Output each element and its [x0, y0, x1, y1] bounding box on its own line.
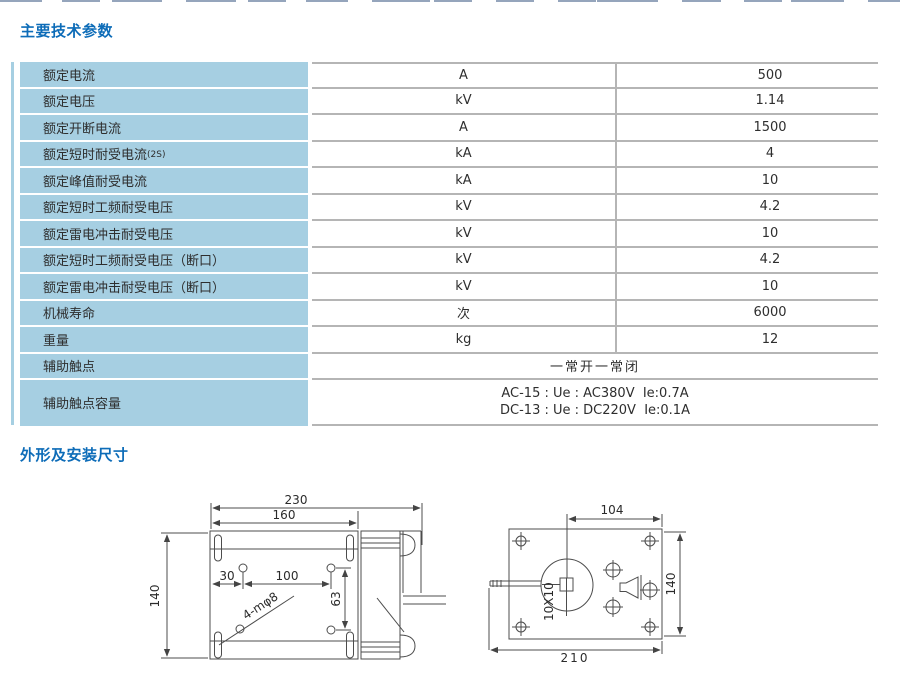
table-row: 额定短时工频耐受电压kV4.2 [20, 195, 878, 222]
dim-104: 104 [601, 503, 624, 517]
table-row: 额定短时工频耐受电压（断口）kV4.2 [20, 248, 878, 275]
param-value: 1.14 [617, 89, 878, 116]
param-label: 额定雷电冲击耐受电压 [20, 221, 308, 248]
right-hole [640, 580, 660, 600]
table-row: 辅助触点容量AC-15 : Ue : AC380V Ie:0.7ADC-13 :… [20, 380, 878, 426]
param-label: 额定峰值耐受电流 [20, 168, 308, 195]
dim-30: 30 [219, 569, 234, 583]
mounting-slot [215, 632, 222, 658]
rear-view-labels: 104 140 210 10X10 [542, 503, 678, 665]
param-value: 4.2 [617, 248, 878, 275]
side-projection [361, 531, 446, 659]
table-row: 额定短时耐受电流(2S)kA4 [20, 142, 878, 169]
table-row: 额定峰值耐受电流kA10 [20, 168, 878, 195]
rear-plate-outline [509, 529, 662, 639]
page-top-cropped-text-artifact [0, 0, 900, 2]
table-row: 额定雷电冲击耐受电压（断口）kV10 [20, 274, 878, 301]
param-label: 额定短时工频耐受电压（断口） [20, 248, 308, 275]
param-unit: 次 [312, 301, 617, 328]
front-view-drawing [161, 503, 446, 659]
corner-hole [512, 532, 530, 550]
table-row: 额定雷电冲击耐受电压kV10 [20, 221, 878, 248]
table-row: 辅助触点一常开一常闭 [20, 354, 878, 381]
param-label: 辅助触点 [20, 354, 308, 381]
front-view-labels: 230 160 140 30 100 63 4-mφ8 [148, 493, 343, 623]
dim-210: 210 [561, 651, 590, 665]
corner-hole [512, 618, 530, 636]
param-span-line: AC-15 : Ue : AC380V Ie:0.7A [501, 385, 688, 402]
cone-feature [620, 575, 641, 600]
lever-arm [490, 580, 541, 587]
param-value: 6000 [617, 301, 878, 328]
mounting-slot [215, 535, 222, 561]
param-unit: A [312, 115, 617, 142]
param-label: 额定电压 [20, 89, 308, 116]
param-unit: kV [312, 195, 617, 222]
param-unit: kV [312, 248, 617, 275]
param-span-line: DC-13 : Ue : DC220V Ie:0.1A [500, 402, 690, 419]
param-label-note: (2S) [147, 150, 165, 160]
param-label: 额定开断电流 [20, 115, 308, 142]
param-value: 10 [617, 274, 878, 301]
param-unit: kV [312, 89, 617, 116]
param-label: 额定短时工频耐受电压 [20, 195, 308, 222]
mounting-hole [327, 564, 335, 572]
rear-view-drawing [489, 514, 686, 654]
mounting-hole [239, 564, 247, 572]
dim-63: 63 [329, 591, 343, 606]
param-label: 机械寿命 [20, 301, 308, 328]
param-value: 12 [617, 327, 878, 354]
param-label: 辅助触点容量 [20, 380, 308, 426]
mounting-slot [347, 632, 354, 658]
param-value: 4 [617, 142, 878, 169]
param-unit: A [312, 62, 617, 89]
section-title-dimensions: 外形及安装尺寸 [20, 444, 129, 465]
param-unit: kV [312, 221, 617, 248]
dim-230: 230 [285, 493, 308, 507]
param-label: 重量 [20, 327, 308, 354]
param-unit: kg [312, 327, 617, 354]
param-value: 4.2 [617, 195, 878, 222]
param-unit: kA [312, 142, 617, 169]
table-row: 额定开断电流A1500 [20, 115, 878, 142]
corner-hole [641, 618, 659, 636]
param-span-value: AC-15 : Ue : AC380V Ie:0.7ADC-13 : Ue : … [312, 380, 878, 426]
dim-160: 160 [273, 508, 296, 522]
mounting-hole [327, 626, 335, 634]
table-row: 机械寿命次6000 [20, 301, 878, 328]
param-label: 额定雷电冲击耐受电压（断口） [20, 274, 308, 301]
mounting-slot [347, 535, 354, 561]
table-row: 重量kg12 [20, 327, 878, 354]
params-table: 额定电流A500额定电压kV1.14额定开断电流A1500额定短时耐受电流(2S… [20, 62, 878, 426]
table-row: 额定电流A500 [20, 62, 878, 89]
param-value: 500 [617, 62, 878, 89]
dim-100: 100 [276, 569, 299, 583]
table-left-border [11, 62, 14, 425]
section-title-main-parameters: 主要技术参数 [20, 20, 113, 41]
corner-hole [641, 532, 659, 550]
dim-140-right: 140 [664, 573, 678, 596]
param-value: 10 [617, 168, 878, 195]
table-row: 额定电压kV1.14 [20, 89, 878, 116]
param-label: 额定短时耐受电流(2S) [20, 142, 308, 169]
param-unit: kA [312, 168, 617, 195]
param-label: 额定电流 [20, 62, 308, 89]
param-span-value: 一常开一常闭 [312, 354, 878, 381]
param-unit: kV [312, 274, 617, 301]
param-value: 1500 [617, 115, 878, 142]
middle-hole [603, 560, 623, 580]
dim-140-left: 140 [148, 585, 162, 608]
shaft-size-label: 10X10 [542, 582, 556, 621]
datasheet-page: { "page": { "title_params": "主要技术参数", "t… [0, 0, 900, 688]
middle-hole [603, 597, 623, 617]
dimension-drawings: 230 160 140 30 100 63 4-mφ8 [140, 488, 720, 688]
param-value: 10 [617, 221, 878, 248]
